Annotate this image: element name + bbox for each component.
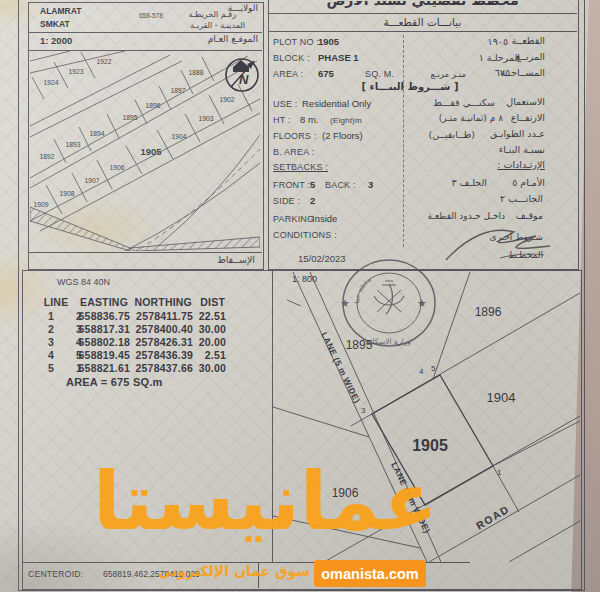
map-number-value: 658-578	[139, 12, 163, 19]
plot-no-value: 1905	[318, 36, 339, 47]
plot-no-label-ar: القطعــة	[465, 35, 545, 46]
area-unit: SQ. M.	[365, 69, 394, 79]
hatched-road	[30, 207, 130, 251]
plot-label: 1903	[198, 115, 213, 122]
plot-label-1905: 1905	[412, 437, 448, 454]
built-area-label: B. AREA :	[273, 147, 314, 157]
back-value: 3	[368, 179, 373, 190]
use-label-ar: الاستعمال	[470, 96, 545, 107]
parking-value: Inside	[312, 213, 337, 224]
centeroid-label: CENTEROID:	[28, 569, 83, 579]
map-number-label: رقـم الخريطـة	[168, 10, 236, 19]
ministry-stamp: ★ ★ سلطنة عمان وزارة الإسكان	[330, 248, 448, 356]
plot-no-label: PLOT NO :	[273, 37, 319, 47]
plot-label: 1908	[59, 190, 74, 197]
side-ar: الجانـــب ٢	[468, 193, 543, 204]
cell: 658817.31	[60, 323, 130, 335]
doc-title-clipped: مخطط تفصيلي لسند الأرض	[270, 1, 575, 13]
omanista-badge: omanista.com	[314, 560, 426, 587]
plot-label: 1909	[33, 201, 48, 208]
section-title: بيانـــات القطعـــة	[268, 16, 577, 28]
hatched-road	[130, 237, 260, 251]
area-label: AREA :	[273, 69, 303, 79]
cell: 658836.75	[60, 310, 130, 322]
svg-text:سلطنة عمان: سلطنة عمان	[330, 248, 372, 304]
watermark-tagline: سوق عمان الإلكتروني	[185, 563, 310, 579]
overview-map: 1922 1923 1924 1888 1897 1896 1902 1895 …	[30, 51, 260, 251]
col-header-dist: DIST	[166, 296, 225, 308]
plot-label: 1895	[122, 114, 137, 121]
plot-label: 1924	[43, 79, 58, 86]
building-terms-title: [ شـــروط البنـــاء ]	[300, 81, 520, 92]
side-label: SIDE :	[273, 196, 300, 206]
cell: 658821.61	[60, 362, 130, 374]
north-letter: N	[239, 72, 249, 87]
back-ar: الخلـف ٣	[425, 177, 487, 188]
stamp-ministry-text: وزارة الإسكان	[367, 337, 411, 346]
cell: 20.00	[166, 336, 226, 348]
plot-label: 1896	[145, 102, 160, 109]
plot-label: 1897	[170, 87, 185, 94]
divider	[28, 32, 262, 33]
use-value: Residential Only	[302, 98, 371, 109]
plot-label: 1906	[109, 164, 124, 171]
block-label-ar: المربــع	[495, 51, 545, 62]
block-value: PHASE 1	[318, 52, 359, 63]
plot-label: 1902	[219, 96, 234, 103]
subject-plot-label: 1905	[140, 146, 162, 157]
plot-label: 1907	[84, 177, 99, 184]
corner-3: 3	[361, 406, 366, 415]
plot-label: 1892	[39, 153, 54, 160]
area-unit-ar: متـر مربـع	[408, 69, 466, 79]
height-label: HT :	[273, 115, 291, 125]
floors-value: (2 Floors)	[322, 130, 363, 141]
corner-4: 4	[419, 367, 424, 376]
back-label: BACK :	[325, 180, 356, 190]
town-value: SMKAT	[40, 19, 70, 29]
stamp-country-text: سلطنة عمان	[330, 248, 372, 304]
document-photo: ALAMRAT SMKAT الولايـــة 658-578 رقـم ال…	[0, 0, 600, 592]
north-arrow-icon: N	[226, 59, 258, 91]
location-label: الموقـع العـام	[170, 34, 258, 44]
corner-1: 1	[497, 468, 502, 477]
use-label: USE :	[273, 99, 298, 109]
column-divider	[403, 35, 404, 247]
area-summary: AREA = 675 SQ.m	[66, 376, 162, 388]
plot-label: 1888	[188, 69, 203, 76]
plot-label-1896: 1896	[475, 305, 502, 319]
cell: 658802.18	[60, 336, 130, 348]
height-value: 8 m.	[300, 114, 318, 125]
area-value: 675	[318, 68, 334, 79]
divider	[268, 31, 577, 32]
floors-label: FLOORS :	[273, 131, 317, 141]
conditions-label: CONDITIONS :	[273, 230, 337, 240]
cell: 30.00	[166, 362, 226, 374]
built-area-label-ar: نسبـة البنـاء	[465, 144, 545, 155]
corner-5: 5	[431, 364, 436, 373]
floors-label-ar: عـدد الطوابـق	[460, 128, 545, 139]
projection-label: الإســقاط	[150, 254, 255, 265]
signature-mark	[440, 220, 560, 266]
plot-label: 1904	[171, 133, 186, 140]
front-value: 5	[310, 179, 315, 190]
watermark-brand: عمانيستا	[148, 455, 438, 548]
plot-label: 1923	[68, 68, 83, 75]
divider	[28, 252, 262, 253]
col-header-easting: EASTING	[60, 296, 128, 308]
area-label-ar: المســاحــة	[485, 67, 545, 78]
cell: 30.00	[166, 323, 226, 335]
block-label: BLOCK :	[273, 53, 310, 63]
front-label: FRONT :	[273, 180, 310, 190]
plot-label-1904: 1904	[487, 390, 516, 405]
setbacks-label: SETBACKS :	[273, 162, 328, 172]
side-value: 2	[310, 195, 315, 206]
plot-label: 1922	[96, 58, 111, 65]
overview-scale: 1: 2000	[40, 35, 72, 46]
omanista-site-label: omanista.com	[321, 566, 419, 582]
state-value: ALAMRAT	[40, 6, 81, 16]
cell: 2.51	[166, 349, 226, 361]
datum-label: WGS 84 40N	[57, 277, 110, 287]
cell: 658819.45	[60, 349, 130, 361]
height-label-ar: الارتفــاع	[475, 112, 545, 123]
star-icon: ★	[417, 297, 427, 309]
plot-label: 1894	[89, 130, 104, 137]
front-ar: الأمـام ٥	[490, 177, 545, 188]
height-note: (Eight)m	[330, 116, 362, 125]
divider	[268, 13, 577, 14]
setbacks-label-ar: الإرتـدادات :	[465, 159, 545, 170]
star-icon: ★	[340, 297, 350, 309]
town-label: المدينـة - القريـة	[150, 21, 245, 30]
doc-title: مخطط تفصيلي لسند الأرض	[270, 1, 575, 8]
plot-label: 1893	[65, 141, 80, 148]
cell: 22.51	[166, 310, 226, 322]
